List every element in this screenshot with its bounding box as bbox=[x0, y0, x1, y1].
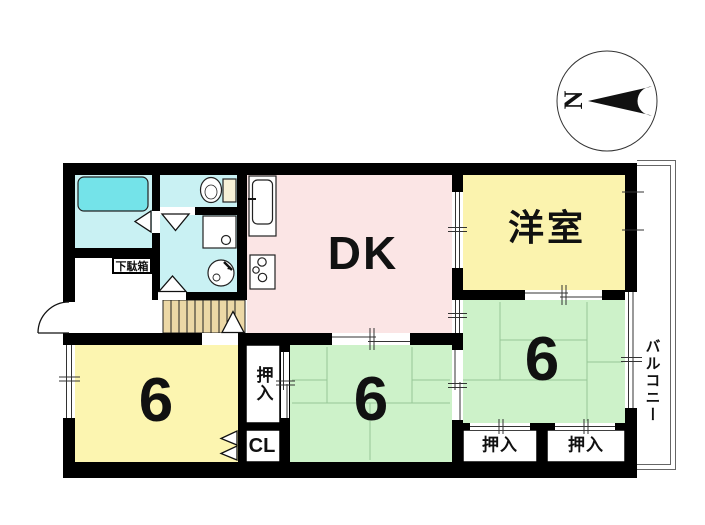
balcony-label: バルコニー bbox=[645, 339, 660, 424]
tatami-middle-label: 6 bbox=[354, 369, 388, 431]
oshiire-middle-label: 押入 bbox=[255, 366, 272, 402]
oshiire-right-2-label: 押入 bbox=[568, 437, 604, 454]
wash-basin-icon bbox=[208, 260, 234, 286]
getabako-label: 下駄箱 bbox=[116, 258, 149, 274]
western-room-label: 洋室 bbox=[508, 210, 586, 246]
kitchen-sink-icon bbox=[248, 176, 276, 236]
oshiire-right-1-label: 押入 bbox=[482, 437, 518, 454]
getabako-cabinet: 下駄箱 bbox=[112, 257, 152, 274]
bathtub-icon bbox=[78, 177, 148, 211]
tatami-right-label: 6 bbox=[525, 329, 559, 391]
toilet-icon bbox=[201, 178, 237, 203]
washing-machine-icon bbox=[203, 216, 236, 248]
floor-plan: N DK 洋室 6 6 6 押入 CL 押入 押入 下駄箱 バルコニー bbox=[0, 0, 705, 525]
cl-label: CL bbox=[249, 436, 276, 456]
dk-room-label: DK bbox=[328, 230, 398, 276]
tatami-left-label: 6 bbox=[139, 370, 173, 432]
compass-north-label: N bbox=[561, 91, 587, 110]
stove-icon bbox=[250, 255, 275, 289]
